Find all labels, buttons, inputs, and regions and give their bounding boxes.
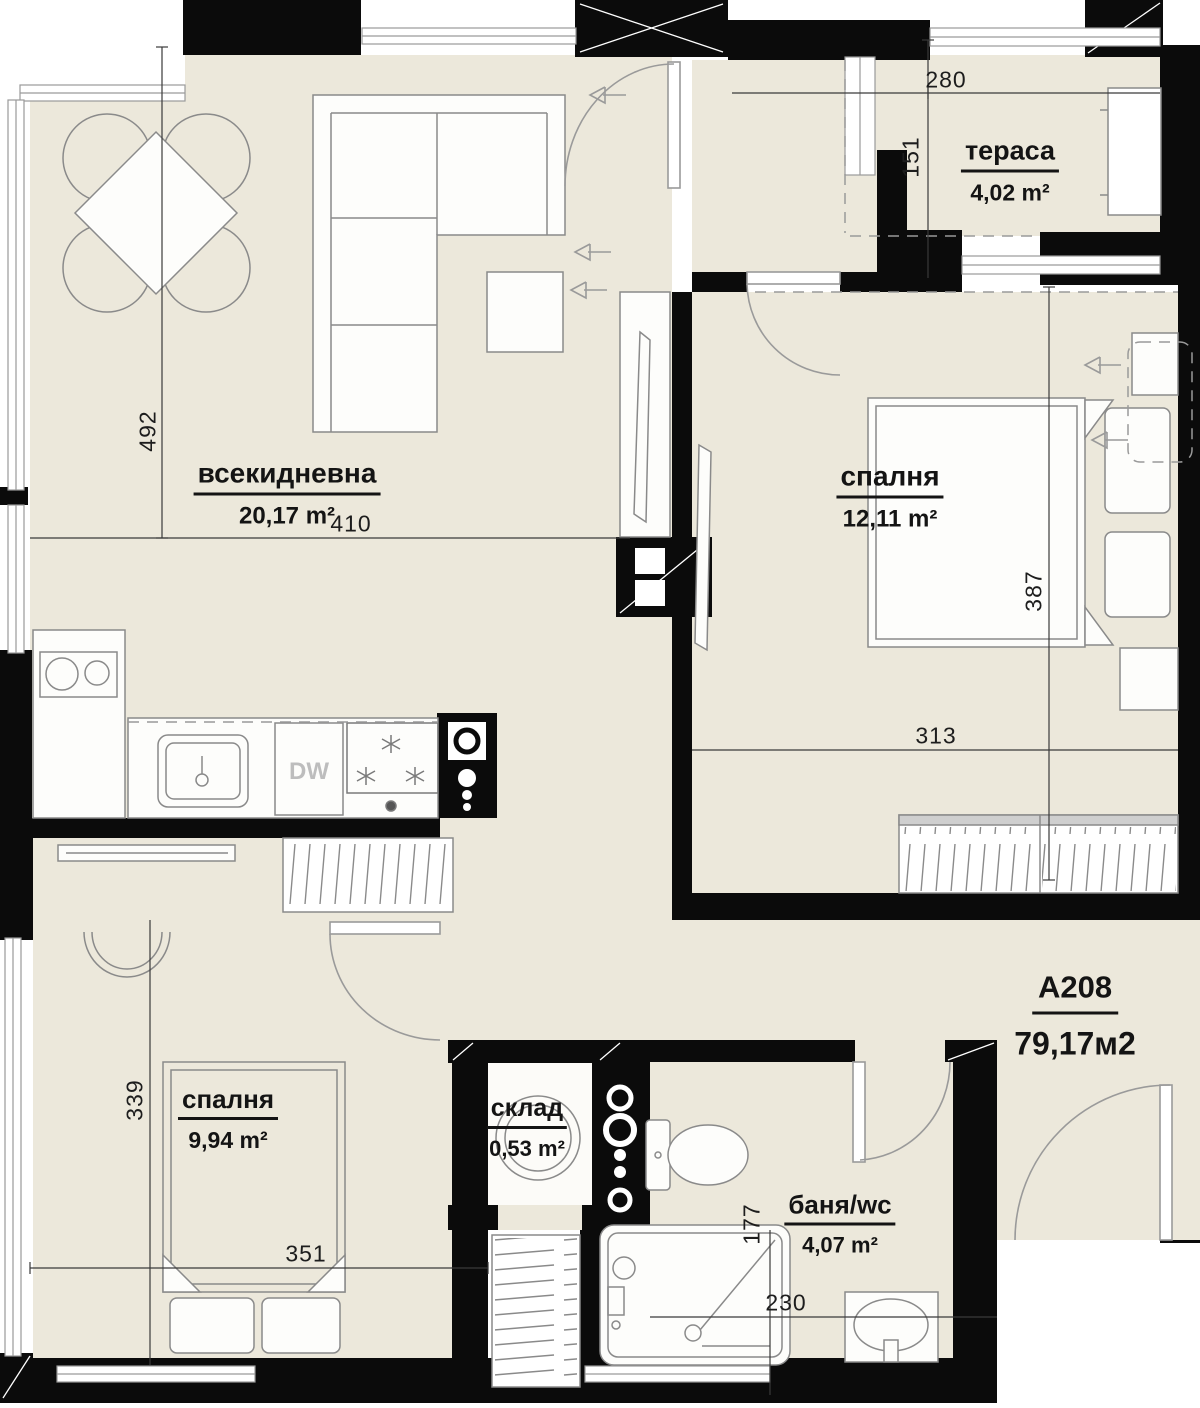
bathtub: [600, 1225, 790, 1365]
room-label-bedroom2: спалня 9,94 m²: [178, 1086, 278, 1152]
dimension-351: 351: [285, 1241, 326, 1268]
wardrobe-bedroom1: [899, 815, 1178, 893]
window-left-living-b: [8, 505, 24, 653]
room-label-terrace: тераса 4,02 m²: [961, 138, 1059, 205]
apartment-area: 79,17м2: [1014, 1026, 1136, 1063]
dimension-339: 339: [122, 1079, 149, 1120]
room-name-bedroom2: спалня: [178, 1086, 278, 1120]
room-area-storage: 0,53 m²: [487, 1138, 567, 1160]
room-area-bedroom2: 9,94 m²: [178, 1129, 278, 1152]
window-terrace-top: [930, 28, 1160, 46]
window-top-left: [20, 85, 185, 101]
outside-area: [997, 1243, 1200, 1408]
apartment-id: A208: [1032, 970, 1118, 1015]
room-name-terrace: тераса: [961, 138, 1059, 173]
window-left-living-a: [8, 100, 24, 490]
room-area-bedroom1: 12,11 m²: [836, 508, 943, 532]
room-label-storage: склад 0,53 m²: [487, 1096, 567, 1160]
apartment-label: A208 79,17м2: [1014, 970, 1136, 1063]
room-label-bedroom1: спалня 12,11 m²: [836, 463, 943, 532]
floor-plan-drawing: [0, 0, 1200, 1408]
dimension-313: 313: [915, 723, 956, 750]
window-bottom-a: [57, 1366, 255, 1382]
wardrobe-bedroom2: [283, 838, 453, 912]
room-label-bath: баня/wc 4,07 m²: [784, 1192, 895, 1257]
dimension-492: 492: [135, 410, 162, 451]
dishwasher-label: DW: [289, 758, 329, 786]
kitchen-tall-unit: [33, 630, 125, 818]
room-name-bedroom1: спалня: [836, 463, 943, 499]
terrace-door-frame: [845, 57, 875, 175]
floor-plan: всекидневна 20,17 m² спалня 12,11 m² тер…: [0, 0, 1200, 1408]
bathroom-sink: [845, 1292, 938, 1362]
room-name-bath: баня/wc: [784, 1192, 895, 1226]
toilet: [646, 1120, 748, 1190]
dimension-177: 177: [739, 1203, 766, 1244]
dimension-151: 151: [898, 136, 925, 177]
room-area-terrace: 4,02 m²: [961, 182, 1059, 205]
dimension-387: 387: [1021, 570, 1048, 611]
window-bedroom2-left: [5, 938, 21, 1356]
dimension-410: 410: [330, 511, 371, 538]
ac-unit: [1100, 88, 1161, 215]
storage-door-opening: [498, 1205, 582, 1230]
window-top-middle: [362, 28, 576, 44]
room-name-living: всекидневна: [194, 460, 381, 496]
coffee-table: [487, 272, 563, 352]
room-area-bath: 4,07 m²: [784, 1235, 895, 1257]
hall-closet: [492, 1235, 580, 1387]
dimension-280: 280: [925, 67, 966, 94]
desk: [58, 845, 235, 861]
dimension-230: 230: [765, 1290, 806, 1317]
room-name-storage: склад: [487, 1096, 567, 1129]
window-bedroom-terrace: [962, 256, 1160, 274]
hallway-niche: [620, 292, 670, 537]
window-bottom-b: [585, 1366, 770, 1382]
